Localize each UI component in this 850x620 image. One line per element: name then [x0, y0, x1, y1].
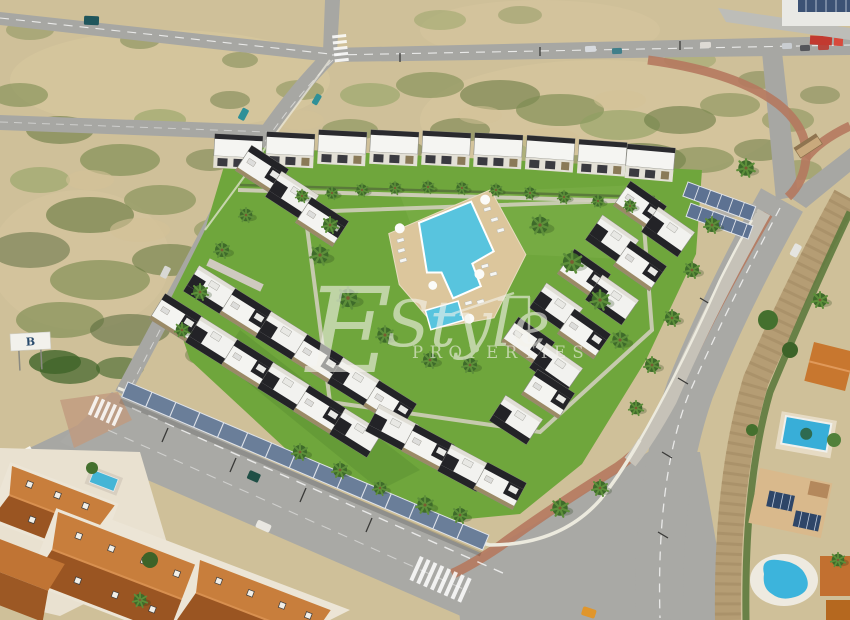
scrub-patch	[29, 350, 81, 374]
building-module	[473, 133, 523, 169]
kidney-pool	[750, 554, 818, 606]
tree	[758, 310, 778, 330]
scrub-patch	[110, 218, 170, 242]
scrub-patch	[594, 90, 646, 110]
tree	[142, 552, 158, 568]
scrub-patch	[498, 6, 542, 24]
scrub-patch	[458, 106, 502, 124]
scrub-patch	[210, 91, 250, 109]
scene-svg: B E Style PROPERTIES	[0, 0, 850, 620]
billboard-letter: B	[25, 335, 35, 348]
scrub-patch	[396, 72, 464, 98]
scrub-patch	[414, 10, 466, 30]
building-module	[317, 130, 367, 166]
building-module	[421, 131, 471, 167]
tree	[746, 424, 758, 436]
scrub-patch	[800, 86, 840, 104]
aerial-photo: B E Style PROPERTIES	[0, 0, 850, 620]
tree	[827, 433, 841, 447]
scrub-patch	[124, 185, 196, 215]
scrub-patch	[222, 52, 258, 68]
watermark-script-initial: E	[304, 262, 392, 400]
scrub-patch	[10, 167, 70, 193]
building-module	[625, 144, 676, 182]
watermark-caps-word: PROPERTIES	[412, 343, 590, 362]
orange-house	[826, 600, 850, 620]
scrub-patch	[66, 170, 114, 190]
scrub-patch	[340, 83, 400, 107]
container	[84, 16, 99, 26]
tree	[86, 462, 98, 474]
building-module	[577, 139, 627, 176]
scrub-patch	[700, 93, 760, 117]
building-module	[369, 130, 419, 166]
building-module	[525, 135, 575, 172]
tree	[782, 342, 798, 358]
